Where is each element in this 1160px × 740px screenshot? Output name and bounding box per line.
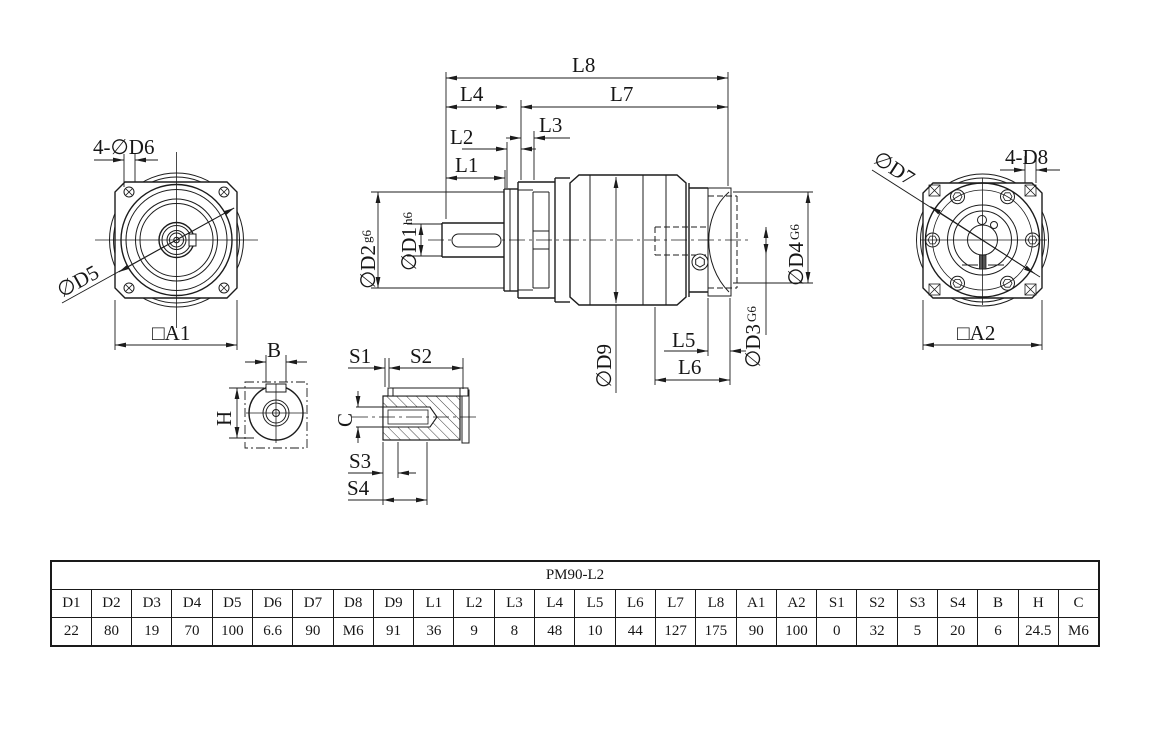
front-holes-label: 4-∅D6 [93,135,154,159]
spec-value-cell: 0 [817,618,857,647]
shaft-s1-label: S1 [349,344,371,368]
rear-square-label: □A2 [957,321,995,345]
side-d2-label: ∅D2g6 [356,230,380,289]
side-l4-label: L4 [460,82,484,106]
spec-header-cell: D9 [373,590,413,618]
side-d4-label: ∅D4G6 [784,224,808,286]
rear-holes-label: 4-D8 [1005,145,1048,169]
spec-header-cell: D7 [293,590,333,618]
front-circle-label: ∅D5 [53,260,103,302]
spec-value-cell: 10 [575,618,615,647]
spec-value-cell: 8 [494,618,534,647]
spec-value-cell: 6.6 [252,618,292,647]
spec-value-cell: 91 [373,618,413,647]
technical-drawing: 4-∅D6 ∅D5 □A1 [0,0,1160,555]
shaft-dim-s1-s2: S1 S2 [348,344,463,389]
spec-value-cell: 100 [212,618,252,647]
front-dim-square: □A1 [115,300,237,350]
spec-value-cell: 20 [938,618,978,647]
spec-header-cell: L7 [655,590,695,618]
spec-header-cell: L4 [535,590,575,618]
shaft-detail-view: C S1 S2 S3 S4 [333,344,478,505]
spec-header-cell: A1 [736,590,776,618]
spec-header-cell: A2 [776,590,816,618]
spec-header-cell: H [1018,590,1058,618]
rear-dim-square: □A2 [923,300,1042,350]
key-width-label: B [267,338,281,362]
spec-value-cell: 100 [776,618,816,647]
shaft-s4-label: S4 [347,476,370,500]
spec-value-cell: 19 [132,618,172,647]
spec-header-cell: S3 [897,590,937,618]
spec-header-cell: D5 [212,590,252,618]
set-screw [692,254,708,270]
spec-value-cell: M6 [333,618,373,647]
rear-circle-label: ∅D7 [869,146,919,190]
spec-value-cell: 36 [414,618,454,647]
side-l8-label: L8 [572,53,595,77]
shaft-s2-label: S2 [410,344,432,368]
spec-header-cell: L6 [615,590,655,618]
spec-value-cell: 5 [897,618,937,647]
key-dim-b: B [245,338,307,382]
spec-value-cell: 44 [615,618,655,647]
spec-value-cell: 175 [696,618,736,647]
spec-header-row: D1D2D3D4D5D6D7D8D9L1L2L3L4L5L6L7L8A1A2S1… [51,590,1099,618]
spec-value-cell: 90 [293,618,333,647]
key-height-label: H [212,411,236,426]
spec-header-cell: C [1058,590,1099,618]
spec-header-cell: D2 [91,590,131,618]
rear-view: ∅D7 4-D8 □A2 [869,145,1060,350]
spec-header-cell: L8 [696,590,736,618]
key-section-view: B H [212,338,307,448]
side-l3-label: L3 [539,113,562,137]
spec-value-cell: 32 [857,618,897,647]
side-l1-label: L1 [455,153,478,177]
shaft-dim-s3-s4: S3 S4 [347,442,427,505]
side-l7-label: L7 [610,82,633,106]
spec-value-cell: 9 [454,618,494,647]
rear-dim-holes: 4-D8 [1000,145,1060,183]
spec-header-cell: D4 [172,590,212,618]
spec-header-cell: L1 [414,590,454,618]
spec-value-cell: 70 [172,618,212,647]
spec-value-cell: 24.5 [1018,618,1058,647]
side-d3-label: ∅D3G6 [741,306,765,368]
shaft-s3-label: S3 [349,449,371,473]
spec-header-cell: D1 [51,590,91,618]
spec-header-cell: S2 [857,590,897,618]
side-l2-label: L2 [450,125,473,149]
spec-header-cell: B [978,590,1018,618]
drawing-sheet: 4-∅D6 ∅D5 □A1 [0,0,1160,740]
spec-value-cell: 48 [535,618,575,647]
front-square-label: □A1 [152,321,190,345]
spec-value-row: 228019701006.690M69136984810441271759010… [51,618,1099,647]
spec-value-cell: 22 [51,618,91,647]
shaft-thread-label: C [333,413,357,427]
spec-header-cell: L5 [575,590,615,618]
side-l5-l6-dims: L5 L6 [655,298,746,385]
side-d9-dim: ∅D9 [592,177,616,393]
spec-header-cell: L3 [494,590,534,618]
spec-header-cell: S1 [817,590,857,618]
spec-title-row: PM90-L2 [51,561,1099,590]
front-view: 4-∅D6 ∅D5 □A1 [53,135,258,350]
side-keyway-slot [452,234,501,247]
side-l6-label: L6 [678,355,701,379]
side-d9-label: ∅D9 [592,344,616,388]
spec-table: PM90-L2 D1D2D3D4D5D6D7D8D9L1L2L3L4L5L6L7… [50,560,1100,647]
spec-header-cell: L2 [454,590,494,618]
spec-value-cell: 90 [736,618,776,647]
spec-value-cell: M6 [1058,618,1099,647]
spec-table-title: PM90-L2 [51,561,1099,590]
spec-header-cell: D8 [333,590,373,618]
side-l5-label: L5 [672,328,695,352]
spec-header-cell: D6 [252,590,292,618]
side-right-dia-dims: ∅D4G6 ∅D3G6 [733,192,813,368]
spec-header-cell: S4 [938,590,978,618]
side-view: L8 L4 L7 L3 L2 L1 ∅D2g6 [356,53,813,393]
spec-value-cell: 80 [91,618,131,647]
spec-value-cell: 6 [978,618,1018,647]
spec-header-cell: D3 [132,590,172,618]
side-d1-label: ∅D1h6 [397,212,421,271]
spec-table-wrap: PM90-L2 D1D2D3D4D5D6D7D8D9L1L2L3L4L5L6L7… [50,560,1100,647]
spec-value-cell: 127 [655,618,695,647]
